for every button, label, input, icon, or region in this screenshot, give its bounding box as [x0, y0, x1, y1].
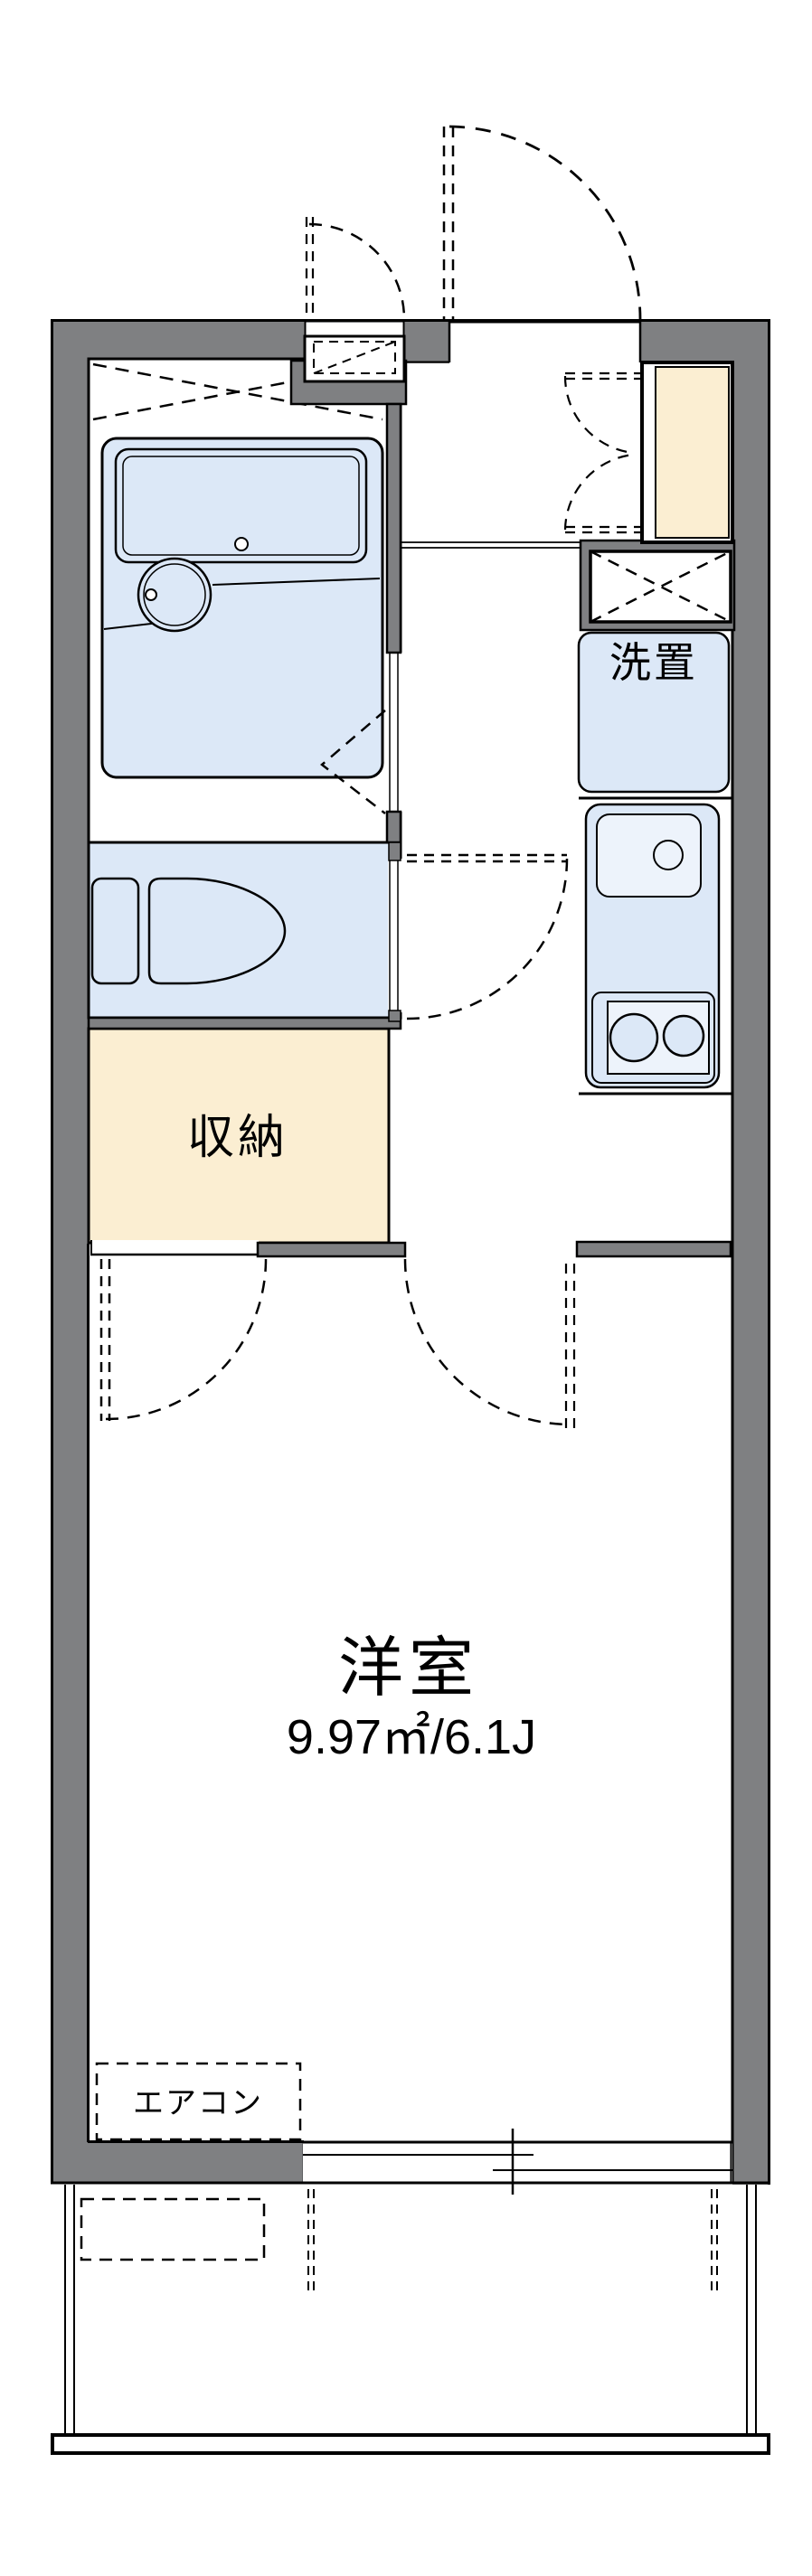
burner-left [610, 1014, 657, 1061]
meter-box [305, 217, 404, 381]
room-label: 洋室 [338, 1632, 479, 1705]
wall-toilet-storage-divider [89, 1018, 401, 1029]
toilet-room [89, 842, 567, 1019]
meter-box-door-swing [309, 224, 404, 319]
toilet-tank [92, 879, 138, 983]
kitchen-sink [597, 814, 701, 897]
shoe-cabinet [565, 362, 732, 542]
wall-bath-right-upper [387, 404, 401, 653]
main-room: 洋室 9.97㎡/6.1J エアコン [97, 1632, 536, 2139]
shoe-cabinet-body [656, 367, 729, 538]
wall-toilet-right-top [389, 842, 401, 860]
balcony [52, 2185, 769, 2453]
tub-drain [235, 538, 248, 550]
wall-toilet-right-bottom [389, 1011, 401, 1021]
burner-right [664, 1016, 703, 1056]
sliding-window [303, 2129, 732, 2195]
room-door-swing [405, 1259, 571, 1424]
pipe-space [590, 551, 731, 622]
washer-label: 洗置 [609, 639, 698, 686]
storage-closet: 収納 [89, 1029, 389, 1421]
shoe-cabinet-door-swing-bottom [565, 455, 633, 530]
bathroom [89, 359, 402, 842]
floorplan-svg: 収納 [0, 0, 812, 2576]
wall-right [732, 319, 770, 2185]
room-door [405, 1259, 574, 1431]
storage-label: 収納 [187, 1112, 288, 1164]
wall-room-divider-right [577, 1242, 731, 1256]
entrance-door-swing [449, 127, 640, 319]
storage-door-swing [106, 1259, 266, 1419]
wall-room-divider-left [258, 1243, 405, 1256]
kitchen [579, 798, 732, 1094]
floorplan-page: 収納 [0, 0, 812, 2576]
outdoor-unit-box [81, 2199, 264, 2260]
balcony-rail [52, 2435, 769, 2453]
washing-machine-space: 洗置 [579, 633, 729, 792]
toilet-door-swing [407, 859, 567, 1019]
wall-bath-right-lower [387, 812, 401, 842]
wall-bottom-left [51, 2140, 303, 2183]
shoe-cabinet-door-swing-top [565, 376, 633, 453]
room-area-label: 9.97㎡/6.1J [287, 1710, 536, 1764]
aircon-label: エアコン [133, 2086, 263, 2120]
faucet [654, 841, 683, 870]
wall-left [51, 319, 89, 2183]
